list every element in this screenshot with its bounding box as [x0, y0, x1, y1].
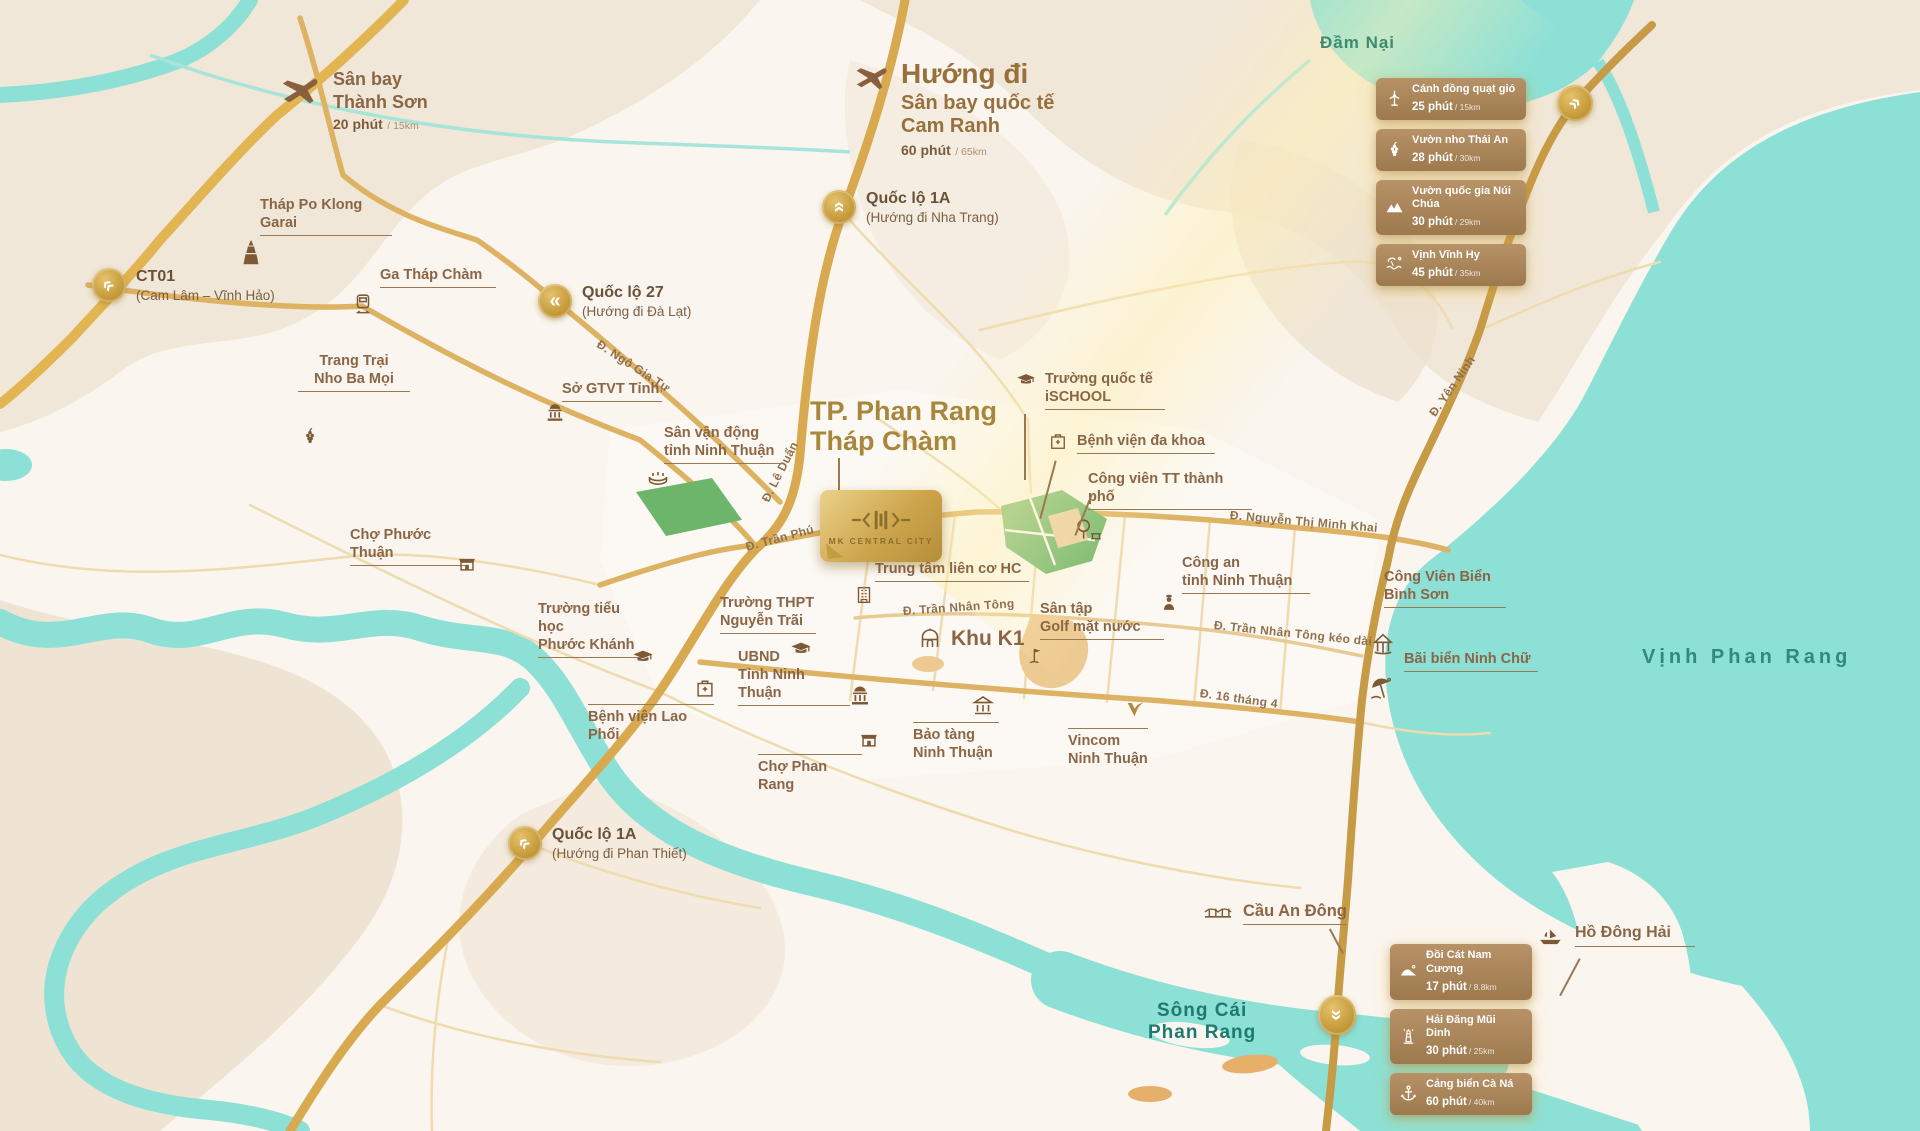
highway-ql1a-north: » Quốc lộ 1A(Hướng đi Nha Trang): [822, 190, 999, 225]
highway-name: Quốc lộ 1A: [552, 826, 687, 844]
poi-cong-vien-tt: Công viên TT thành phố: [1088, 470, 1268, 510]
destination-badge: Vườn nho Thái An 28 phút/ 30km: [1376, 129, 1526, 171]
poi-truong-quoc-te-ischool: Trường quốc tế iSCHOOL: [1016, 370, 1165, 410]
poi-cong-vien-bien-binh-son: Công Viên Biển Bình Sơn: [1370, 568, 1510, 608]
cham-tower-icon: [236, 238, 266, 268]
poi-khu-k1: Khu K1: [918, 626, 1025, 652]
song-cai-label: Sông Cái Phan Rang: [1148, 1000, 1256, 1044]
poi-cong-an-tinh: Công an tỉnh Ninh Thuận: [1158, 554, 1308, 594]
government-building-icon: [544, 402, 566, 424]
map-canvas: TP. Phan Rang Tháp Chàm MK CENTRAL CITY …: [0, 0, 1920, 1131]
poi-trung-tam-lien-co: Trung tâm liên cơ HC: [853, 560, 1033, 582]
route-marker-northeast: »: [1557, 85, 1593, 121]
highway-sub: (Hướng đi Nha Trang): [866, 210, 999, 225]
destination-badge: Vịnh Vĩnh Hy 45 phút/ 35km: [1376, 244, 1526, 286]
travel-time: 20 phút: [333, 116, 383, 132]
boat-icon: [1536, 922, 1566, 948]
travel-time: 60 phút: [901, 142, 951, 158]
poi-so-gtvt-tinh: Sở GTVT Tỉnh: [544, 380, 664, 402]
chevron-down-icon: »: [1318, 995, 1356, 1035]
travel-distance: / 15km: [387, 120, 419, 132]
poi-huong-di-cam-ranh: Hướng đi Sân bay quốc tế Cam Ranh 60 phú…: [852, 58, 1054, 160]
vinh-phan-rang-label: Vịnh Phan Rang: [1642, 646, 1851, 669]
poi-cau-an-dong: Cầu An Đông: [1202, 900, 1347, 926]
highway-ql1a-south: « Quốc lộ 1A(Hướng đi Phan Thiết): [508, 826, 687, 861]
hospital-icon: [1048, 432, 1068, 452]
train-station-icon: [352, 292, 374, 314]
destination-badge: Hải Đăng Mũi Dinh 30 phút/ 25km: [1390, 1009, 1532, 1065]
chevron-left-icon: «: [538, 284, 572, 318]
bay-icon: [1385, 255, 1404, 274]
highway-name: Quốc lộ 1A: [866, 190, 999, 208]
mk-central-city-plaque: MK CENTRAL CITY: [820, 490, 942, 562]
police-icon: [1158, 592, 1180, 614]
poi-san-bay-thanh-son: Sân bay Thành Sơn 20 phút / 15km: [278, 68, 428, 134]
direction-prefix: Hướng đi: [901, 58, 1054, 90]
airplane-icon: [848, 54, 897, 103]
travel-distance: / 65km: [955, 146, 987, 158]
anchor-icon: [1399, 1084, 1418, 1103]
destinations-bottom-list: Đồi Cát Nam Cương 17 phút/ 8.8km Hải Đăn…: [1390, 944, 1532, 1115]
poi-benh-vien-da-khoa: Bệnh viện đa khoa: [1048, 432, 1215, 454]
direction-line3: Cam Ranh: [901, 115, 1054, 138]
airport-name: Sân bay Thành Sơn: [333, 68, 428, 113]
destination-badge: Đồi Cát Nam Cương 17 phút/ 8.8km: [1390, 944, 1532, 1000]
highway-name: Quốc lộ 27: [582, 284, 691, 302]
direction-line2: Sân bay quốc tế: [901, 92, 1054, 115]
market-icon: [456, 552, 478, 574]
destination-badge: Cánh đồng quạt gió 25 phút/ 15km: [1376, 78, 1526, 120]
poi-ga-thap-cham: Ga Tháp Chàm: [352, 266, 502, 288]
city-title-line1: TP. Phan Rang: [810, 396, 997, 426]
stadium-icon: [646, 466, 670, 490]
graduation-cap-icon: [632, 646, 654, 668]
chevron-down-left-icon: «: [92, 268, 126, 302]
city-title: TP. Phan Rang Tháp Chàm: [810, 396, 997, 456]
pond: [0, 449, 32, 481]
graduation-cap-icon: [1016, 370, 1036, 390]
poi-trang-trai-nho-ba-moi: Trang Trại Nho Ba Mọi: [298, 352, 418, 392]
leader-line: [1024, 414, 1026, 480]
national-park-icon: [1385, 198, 1404, 217]
office-building-icon: [853, 584, 875, 606]
market-icon: [858, 728, 880, 750]
highway-sub: (Cam Lâm – Vĩnh Hảo): [136, 288, 275, 303]
mk-logo-icon: [852, 507, 910, 533]
grapes-icon: [1385, 140, 1404, 159]
poi-san-van-dong: Sân vận động tỉnh Ninh Thuận: [646, 424, 786, 464]
highway-sub: (Hướng đi Phan Thiết): [552, 846, 687, 861]
plaque-label: MK CENTRAL CITY: [829, 536, 934, 546]
hospital-icon: [694, 678, 716, 700]
city-title-leader: [838, 458, 840, 490]
chevron-up-icon: »: [822, 190, 856, 224]
poi-ubnd-tinh: UBND Tỉnh Ninh Thuận: [738, 648, 868, 706]
poi-thap-po-klong-garai: Tháp Po Klong Garai: [238, 196, 398, 236]
bridge-icon: [1202, 900, 1234, 926]
grapes-icon: [300, 426, 320, 446]
chevron-down-left-icon: «: [508, 826, 542, 860]
highway-ct01: « CT01(Cam Lâm – Vĩnh Hảo): [92, 268, 275, 303]
poi-ho-dong-hai: Hồ Đông Hải: [1536, 922, 1695, 948]
poi-cho-phuoc-thuan: Chợ Phước Thuận: [350, 526, 490, 566]
golf-flag-icon: [1026, 646, 1046, 666]
highway-sub: (Hướng đi Đà Lạt): [582, 304, 691, 319]
poi-bai-bien-ninh-chu: Bãi biển Ninh Chữ: [1368, 650, 1548, 672]
windmill-icon: [1385, 89, 1404, 108]
route-marker-south: »: [1318, 995, 1356, 1035]
highway-name: CT01: [136, 268, 275, 286]
lighthouse-icon: [1399, 1027, 1418, 1046]
beach-umbrella-icon: [1368, 676, 1394, 702]
airplane-icon: [272, 62, 330, 120]
destination-badge: Vườn quốc gia Núi Chúa 30 phút/ 29km: [1376, 180, 1526, 236]
dam-nai-label: Đầm Nại: [1320, 33, 1395, 53]
poi-san-tap-golf: Sân tập Golf mặt nước: [1026, 600, 1166, 640]
sand-dune-icon: [1399, 962, 1418, 981]
golf-sand-small: [912, 656, 944, 672]
sandbar-tan-2: [1128, 1086, 1172, 1102]
destinations-top-list: Cánh đồng quạt gió 25 phút/ 15km Vườn nh…: [1376, 78, 1526, 286]
destination-badge: Cảng biển Cà Ná 60 phút/ 40km: [1390, 1073, 1532, 1115]
chevron-up-right-icon: »: [1557, 85, 1593, 121]
museum-icon: [971, 694, 995, 718]
poi-truong-thpt-nguyen-trai: Trường THPT Nguyễn Trãi: [720, 594, 830, 634]
poi-truong-tieu-hoc-phuoc-khanh: Trường tiểu học Phước Khánh: [538, 600, 658, 658]
city-title-line2: Tháp Chàm: [810, 426, 997, 456]
vincom-icon: [1124, 698, 1146, 720]
highway-ql27: « Quốc lộ 27(Hướng đi Đà Lạt): [538, 284, 691, 319]
gate-icon: [918, 627, 942, 651]
government-building-icon: [848, 684, 872, 708]
